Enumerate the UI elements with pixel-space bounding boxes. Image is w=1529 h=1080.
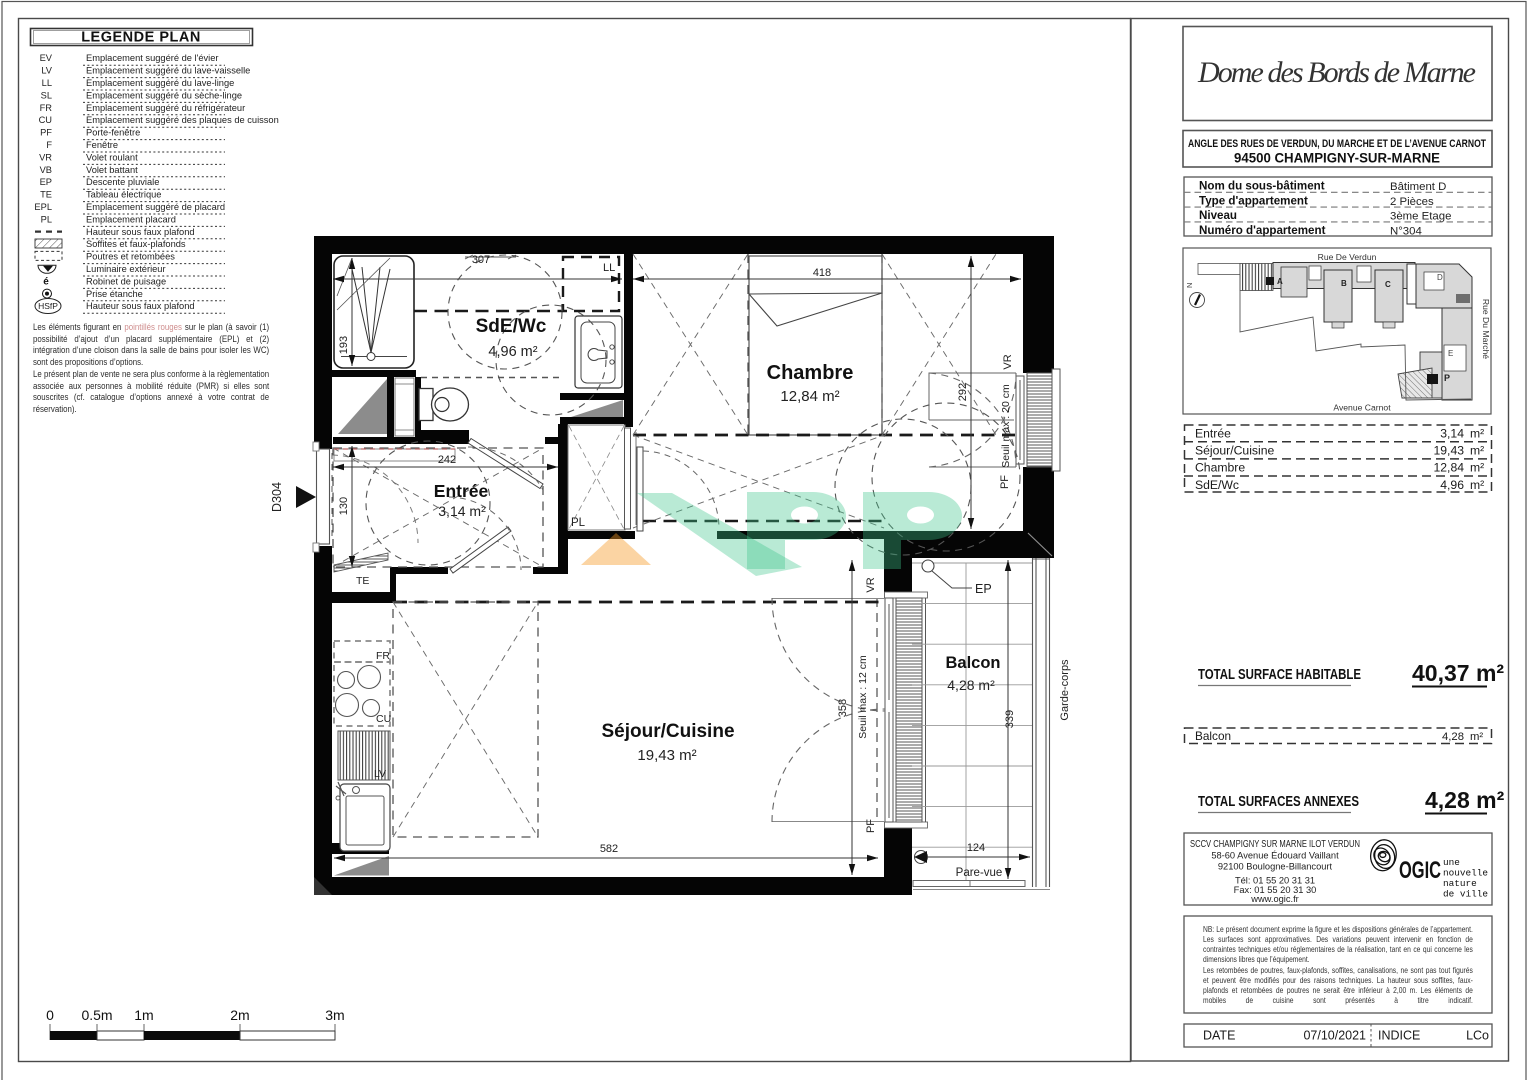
svg-text:Pare-vue: Pare-vue (956, 867, 1003, 879)
svg-text:SdE/Wc: SdE/Wc (1195, 478, 1239, 492)
svg-text:INDICE: INDICE (1378, 1029, 1420, 1043)
svg-text:339: 339 (1004, 710, 1016, 728)
svg-text:418: 418 (813, 267, 831, 279)
svg-text:Fenêtre: Fenêtre (86, 140, 118, 150)
svg-text:4,96 m²: 4,96 m² (488, 344, 537, 360)
svg-text:Emplacement suggéré du réfrigé: Emplacement suggéré du réfrigérateur (86, 103, 245, 113)
svg-text:Chambre: Chambre (767, 362, 854, 384)
svg-text:Chambre: Chambre (1195, 461, 1245, 475)
svg-text:E: E (1448, 349, 1453, 358)
svg-text:Volet battant: Volet battant (86, 165, 138, 175)
svg-text:94500 CHAMPIGNY-SUR-MARNE: 94500 CHAMPIGNY-SUR-MARNE (1234, 151, 1440, 167)
svg-text:4,28 m²: 4,28 m² (947, 677, 995, 693)
svg-text:Soffites et faux-plafonds: Soffites et faux-plafonds (86, 239, 186, 249)
svg-text:Emplacement suggéré de l'évier: Emplacement suggéré de l'évier (86, 53, 219, 63)
svg-text:Hauteur sous faux plafond: Hauteur sous faux plafond (86, 227, 195, 237)
svg-text:é: é (43, 277, 49, 288)
svg-text:une: une (1443, 857, 1460, 868)
svg-text:Poutres et retombées: Poutres et retombées (86, 252, 175, 262)
svg-text:PF: PF (865, 819, 877, 833)
svg-text:Bâtiment D: Bâtiment D (1390, 181, 1446, 193)
svg-text:242: 242 (438, 454, 456, 466)
svg-text:Prise étanche: Prise étanche (86, 289, 143, 299)
svg-text:Numéro d'appartement: Numéro d'appartement (1199, 224, 1326, 237)
svg-text:D304: D304 (270, 482, 284, 512)
svg-text:LEGENDE PLAN: LEGENDE PLAN (81, 30, 201, 46)
svg-text:Niveau: Niveau (1199, 209, 1237, 222)
svg-text:A: A (1277, 277, 1283, 286)
svg-text:EP: EP (40, 177, 52, 187)
svg-text:PF: PF (40, 128, 52, 138)
svg-text:Emplacement suggéré de placard: Emplacement suggéré de placard (86, 202, 225, 212)
svg-text:0.5m: 0.5m (81, 1007, 112, 1023)
svg-text:VR: VR (865, 577, 877, 592)
svg-text:m²: m² (1470, 461, 1484, 475)
svg-text:Hauteur sous faux plafond: Hauteur sous faux plafond (86, 301, 195, 311)
svg-text:PF: PF (999, 475, 1011, 489)
svg-text:Balcon: Balcon (945, 654, 1000, 672)
svg-text:www.ogic.fr: www.ogic.fr (1250, 894, 1299, 904)
svg-text:40,37 m²: 40,37 m² (1412, 660, 1504, 686)
svg-text:2 Pièces: 2 Pièces (1390, 196, 1434, 208)
svg-text:19,43 m²: 19,43 m² (637, 747, 696, 764)
svg-text:2m: 2m (230, 1007, 249, 1023)
svg-text:OGIC: OGIC (1399, 857, 1441, 884)
svg-text:1m: 1m (134, 1007, 153, 1023)
svg-text:292: 292 (957, 383, 969, 401)
svg-text:HSfP: HSfP (38, 301, 58, 311)
svg-text:Volet roulant: Volet roulant (86, 152, 138, 162)
svg-text:N°304: N°304 (1390, 225, 1422, 237)
svg-text:Emplacement suggéré du lave-li: Emplacement suggéré du lave-linge (86, 78, 234, 88)
svg-text:Séjour/Cuisine: Séjour/Cuisine (601, 721, 734, 742)
svg-text:19,43: 19,43 (1434, 444, 1465, 458)
svg-text:LL: LL (603, 262, 615, 274)
svg-text:Robinet de puisage: Robinet de puisage (86, 276, 166, 286)
svg-text:Emplacement suggéré du lave-va: Emplacement suggéré du lave-vaisselle (86, 66, 250, 76)
svg-text:TE: TE (40, 190, 52, 200)
svg-text:Seuil max : 12 cm: Seuil max : 12 cm (857, 655, 869, 739)
svg-text:N: N (1185, 283, 1194, 288)
svg-text:VR: VR (39, 152, 52, 162)
svg-text:B: B (1341, 279, 1347, 288)
svg-text:92100 Boulogne-Billancourt: 92100 Boulogne-Billancourt (1218, 862, 1333, 872)
svg-text:m²: m² (1470, 427, 1484, 441)
svg-text:Entrée: Entrée (434, 481, 489, 501)
svg-text:PL: PL (41, 214, 52, 224)
svg-text:CU: CU (376, 713, 391, 725)
svg-text:Seuil max : 20 cm: Seuil max : 20 cm (1000, 384, 1012, 468)
svg-text:EP: EP (975, 582, 992, 596)
svg-text:Séjour/Cuisine: Séjour/Cuisine (1195, 444, 1274, 458)
svg-text:nature: nature (1443, 878, 1477, 889)
svg-text:Emplacement placard: Emplacement placard (86, 214, 176, 224)
svg-text:Emplacement suggéré des plaque: Emplacement suggéré des plaques de cuiss… (86, 115, 279, 125)
svg-text:DATE: DATE (1203, 1029, 1235, 1043)
svg-text:193: 193 (338, 336, 350, 354)
svg-text:3,14 m²: 3,14 m² (438, 503, 486, 519)
svg-text:Tél: 01 55 20 31 31: Tél: 01 55 20 31 31 (1235, 876, 1315, 886)
svg-text:Descente pluviale: Descente pluviale (86, 177, 159, 187)
svg-text:124: 124 (967, 842, 985, 854)
svg-text:Emplacement suggéré du sèche-l: Emplacement suggéré du sèche-linge (86, 90, 242, 100)
svg-text:Avenue Carnot: Avenue Carnot (1333, 403, 1391, 413)
svg-text:ANGLE DES RUES DE VERDUN, DU M: ANGLE DES RUES DE VERDUN, DU MARCHE ET D… (1188, 138, 1486, 150)
svg-text:LL: LL (42, 78, 52, 88)
svg-text:VB: VB (40, 165, 52, 175)
svg-text:m²: m² (1470, 444, 1484, 458)
svg-text:Type d'appartement: Type d'appartement (1199, 194, 1308, 207)
svg-text:Entrée: Entrée (1195, 427, 1231, 441)
svg-text:m²: m² (1470, 731, 1483, 743)
svg-text:358: 358 (837, 699, 849, 717)
svg-text:Nom du sous-bâtiment: Nom du sous-bâtiment (1199, 180, 1325, 193)
svg-text:TOTAL SURFACES ANNEXES: TOTAL SURFACES ANNEXES (1198, 794, 1359, 810)
svg-text:P: P (1444, 373, 1450, 383)
svg-text:4,28: 4,28 (1442, 731, 1464, 743)
svg-text:3ème Etage: 3ème Etage (1390, 211, 1451, 223)
svg-text:LV: LV (41, 66, 52, 76)
svg-text:3,14: 3,14 (1440, 427, 1464, 441)
svg-text:LCo: LCo (1466, 1029, 1489, 1043)
svg-text:3m: 3m (325, 1007, 344, 1023)
svg-text:EPL: EPL (34, 202, 52, 212)
svg-text:CU: CU (39, 115, 52, 125)
svg-text:D: D (1437, 273, 1443, 282)
svg-text:TOTAL SURFACE HABITABLE: TOTAL SURFACE HABITABLE (1198, 667, 1361, 683)
svg-text:SdE/Wc: SdE/Wc (476, 316, 547, 337)
svg-text:Luminaire extérieur: Luminaire extérieur (86, 264, 166, 274)
svg-text:0: 0 (46, 1007, 54, 1023)
svg-text:PL: PL (571, 517, 586, 529)
svg-text:Porte-fenêtre: Porte-fenêtre (86, 128, 140, 138)
svg-text:FR: FR (40, 103, 53, 113)
svg-text:Rue De Verdun: Rue De Verdun (1318, 252, 1377, 262)
svg-text:de ville: de ville (1443, 889, 1488, 900)
svg-text:F: F (46, 140, 52, 150)
svg-text:Tableau électrique: Tableau électrique (86, 190, 161, 200)
svg-text:12,84 m²: 12,84 m² (780, 388, 839, 405)
svg-text:Rue Du Marché: Rue Du Marché (1481, 299, 1491, 359)
svg-text:4,96: 4,96 (1440, 478, 1464, 492)
svg-text:Garde-corps: Garde-corps (1059, 659, 1071, 721)
svg-text:TE: TE (356, 575, 369, 587)
svg-text:SL: SL (41, 90, 52, 100)
svg-text:4,28 m²: 4,28 m² (1425, 787, 1505, 813)
svg-text:LV: LV (374, 768, 386, 780)
svg-text:582: 582 (600, 843, 618, 855)
svg-text:FR: FR (376, 650, 390, 662)
svg-text:nouvelle: nouvelle (1443, 868, 1488, 879)
svg-text:C: C (1385, 280, 1391, 289)
svg-text:m²: m² (1470, 478, 1484, 492)
svg-text:307: 307 (472, 254, 490, 266)
svg-text:58-60 Avenue Édouard Vaillant: 58-60 Avenue Édouard Vaillant (1211, 851, 1339, 861)
svg-text:SCCV CHAMPIGNY SUR MARNE ILOT: SCCV CHAMPIGNY SUR MARNE ILOT VERDUN (1190, 839, 1360, 850)
svg-text:EV: EV (40, 53, 53, 63)
svg-text:12,84: 12,84 (1434, 461, 1465, 475)
svg-text:130: 130 (338, 497, 350, 515)
svg-text:Balcon: Balcon (1195, 729, 1231, 743)
svg-text:07/10/2021: 07/10/2021 (1303, 1029, 1366, 1043)
svg-text:VR: VR (1002, 354, 1014, 369)
svg-text:Dome des Bords de Marne: Dome des Bords de Marne (1197, 56, 1476, 89)
